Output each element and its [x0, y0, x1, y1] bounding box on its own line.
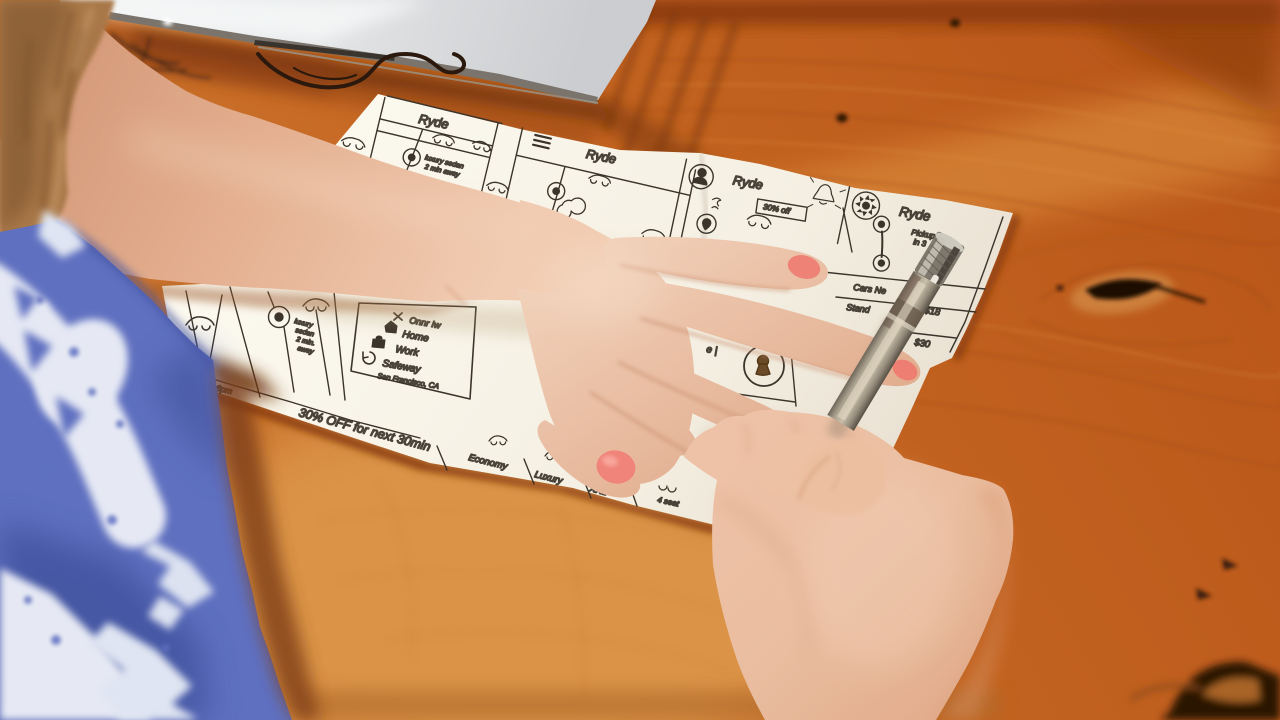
- svg-text:e |: e |: [705, 344, 718, 357]
